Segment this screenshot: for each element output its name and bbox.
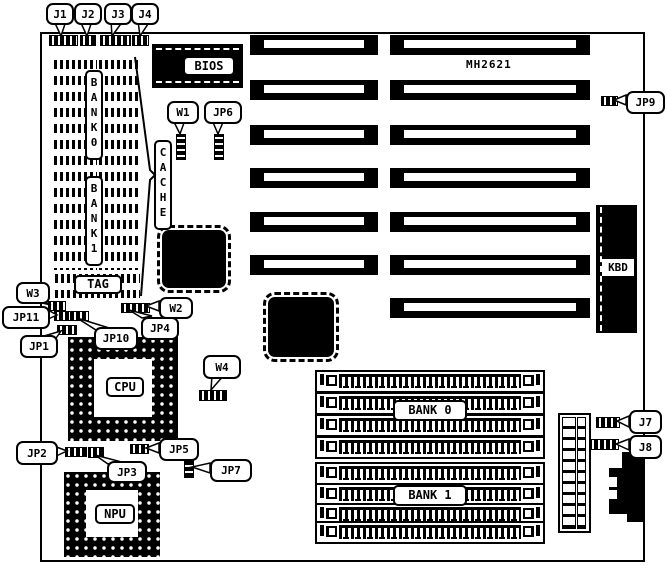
callout-jp1: JP1 — [20, 335, 58, 358]
kbd-label: KBD — [602, 259, 634, 276]
callout-jp9: JP9 — [626, 91, 665, 114]
jumper-j3-pins — [100, 35, 131, 46]
isa-slot — [390, 35, 590, 55]
qfp-chip — [268, 297, 334, 357]
jumper-jp11-pins — [54, 311, 71, 321]
jumper-j2-pins — [80, 35, 96, 46]
simm-slot — [315, 521, 545, 544]
cache-bank1-label: BANK1 — [85, 176, 103, 266]
callout-jp4: JP4 — [141, 317, 179, 340]
cache-dip-column — [99, 60, 141, 270]
isa-slot — [250, 212, 378, 232]
board-model: MH2621 — [466, 58, 556, 71]
simm-bank1-label: BANK 1 — [393, 485, 467, 506]
isa-slot — [250, 80, 378, 100]
jumper-jp3-pins — [88, 447, 104, 458]
qfp-chip — [162, 230, 226, 288]
power-connector-pins — [562, 417, 576, 529]
power-connector — [558, 413, 591, 533]
callout-j1: J1 — [46, 3, 74, 25]
jumper-j1-pins — [49, 35, 78, 46]
isa-slot — [390, 212, 590, 232]
callout-jp3: JP3 — [107, 461, 147, 483]
isa-slot — [390, 80, 590, 100]
jumper-j4-pins — [132, 35, 149, 46]
callout-jp6: JP6 — [204, 101, 242, 124]
isa-slot — [390, 255, 590, 275]
callout-jp5: JP5 — [159, 438, 199, 461]
callout-jp10: JP10 — [94, 327, 138, 350]
cache-bank0-label: BANK0 — [85, 70, 103, 160]
jumper-j7-pins — [596, 417, 620, 428]
callout-w1: W1 — [167, 101, 199, 124]
jumper-jp2-pins — [65, 447, 87, 457]
jumper-j8-pins — [589, 439, 619, 450]
jumper-w3-pins — [48, 301, 66, 311]
callout-j8: J8 — [629, 435, 662, 459]
callout-j2: J2 — [74, 3, 102, 25]
callout-jp2: JP2 — [16, 441, 58, 465]
jumper-jp10-pins — [71, 311, 89, 321]
callout-w2: W2 — [159, 297, 193, 319]
callout-jp11: JP11 — [2, 306, 50, 329]
jumper-w1-pins — [176, 134, 186, 160]
callout-j4: J4 — [131, 3, 159, 25]
npu-label: NPU — [95, 504, 135, 524]
isa-slot — [250, 35, 378, 55]
isa-slot — [390, 168, 590, 188]
jumper-w2-jp4-pins — [121, 303, 150, 313]
jumper-w4-pins — [199, 390, 227, 401]
jumper-jp6-pins — [214, 134, 224, 160]
cache-label: CACHE — [154, 140, 172, 230]
isa-slot — [250, 168, 378, 188]
motherboard-diagram: MH2621 BIOS BANK0 BANK1 CACHE TAG CPU NP… — [0, 0, 667, 569]
callout-j7: J7 — [629, 410, 662, 434]
isa-slot — [390, 125, 590, 145]
callout-jp7: JP7 — [210, 459, 252, 482]
jumper-jp9-pins — [601, 96, 618, 106]
isa-slot — [390, 298, 590, 318]
simm-slot — [315, 370, 545, 393]
simm-slot — [315, 436, 545, 459]
isa-slot — [250, 255, 378, 275]
simm-slot — [315, 462, 545, 485]
tag-label: TAG — [74, 275, 122, 294]
callout-w3: W3 — [16, 282, 50, 304]
cpu-label: CPU — [106, 377, 144, 397]
power-connector-pins — [577, 417, 586, 529]
isa-slot — [250, 125, 378, 145]
simm-bank0-label: BANK 0 — [393, 400, 467, 421]
callout-w4: W4 — [203, 355, 241, 379]
bios-label: BIOS — [183, 56, 235, 76]
jumper-jp1-pins — [57, 325, 77, 335]
jumper-jp5-pins — [130, 444, 149, 454]
callout-j3: J3 — [104, 3, 132, 25]
